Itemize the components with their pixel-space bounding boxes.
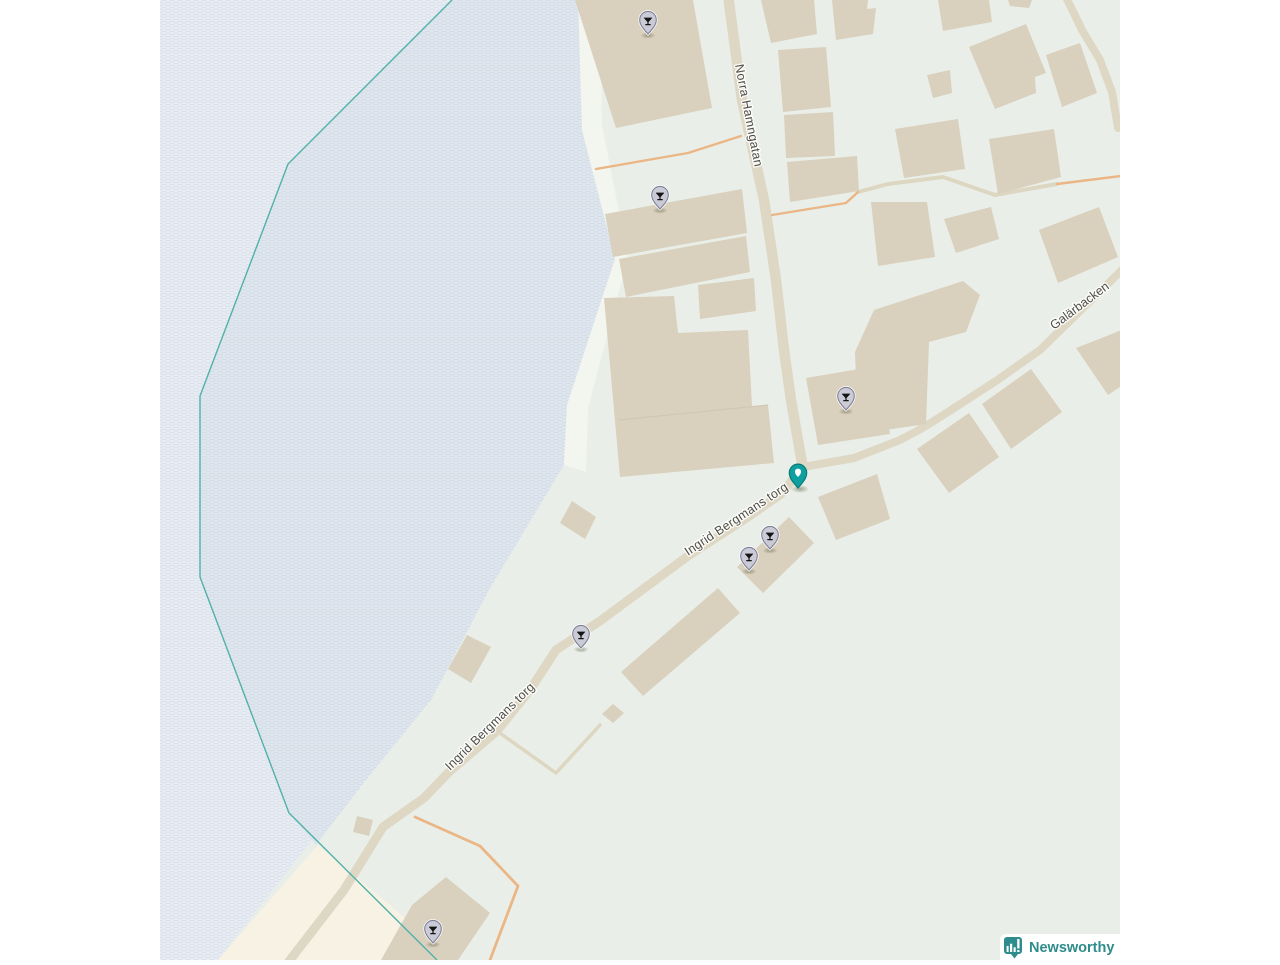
svg-text:Newsworthy: Newsworthy <box>1029 940 1114 956</box>
